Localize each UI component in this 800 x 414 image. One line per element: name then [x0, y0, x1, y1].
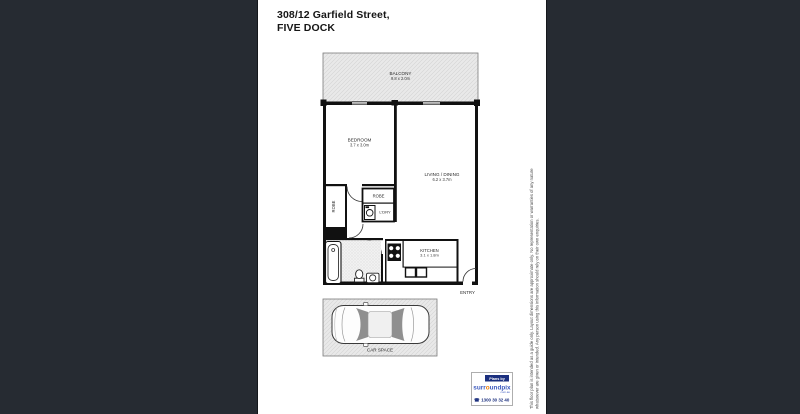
floorplan-page: 308/12 Garfield Street, FIVE DOCK BALCON… — [258, 0, 546, 414]
floorplan-drawing: BALCONY 9.8 x 2.0m — [258, 0, 546, 414]
balcony-region: BALCONY 9.8 x 2.0m — [323, 53, 478, 104]
bathtub-icon — [326, 242, 342, 284]
washing-machine-icon — [365, 206, 376, 220]
entry-label: ENTRY — [460, 290, 475, 295]
bedroom-dims: 3.7 x 3.0m — [350, 143, 370, 148]
surroundpix-logo: Plans by surroundpix com.au ☎1300 30 32 … — [471, 372, 513, 406]
plans-by-label: Plans by — [489, 377, 506, 381]
disclaimer-line-1: This floor plan is intended as a guide o… — [529, 168, 534, 409]
toilet-icon — [355, 270, 365, 282]
brand-suffix: com.au — [501, 390, 511, 394]
basin-icon — [367, 273, 380, 283]
balcony-dims: 9.8 x 2.0m — [391, 76, 411, 81]
disclaimer-text: This floor plan is intended as a guide o… — [526, 0, 546, 414]
bedroom-door-arc — [347, 187, 362, 202]
phone-number: ☎1300 30 32 40 — [474, 398, 510, 403]
car-space-label: CAR SPACE — [367, 348, 393, 353]
stove-icon — [388, 244, 402, 262]
robe-hall-label: ROBE — [373, 194, 385, 199]
dark-backdrop: 308/12 Garfield Street, FIVE DOCK BALCON… — [0, 0, 800, 414]
disclaimer-line-2: whatsoever are given or intended. Any pe… — [535, 218, 540, 409]
robe-bedroom-label: ROBE — [331, 200, 336, 212]
sink-icon — [406, 268, 427, 277]
bathroom-region — [326, 240, 382, 283]
living-dining-dims: 6.2 x 3.7m — [432, 177, 452, 182]
laundry-label: L'DRY — [379, 210, 391, 215]
hall-door-arc — [349, 224, 363, 238]
car-space-region: CAR SPACE — [323, 299, 437, 356]
car-icon — [332, 303, 429, 347]
phone-icon: ☎ — [474, 398, 480, 403]
kitchen-dims: 3.1 x 1.8m — [420, 253, 439, 258]
entry-door-arc — [463, 269, 476, 282]
